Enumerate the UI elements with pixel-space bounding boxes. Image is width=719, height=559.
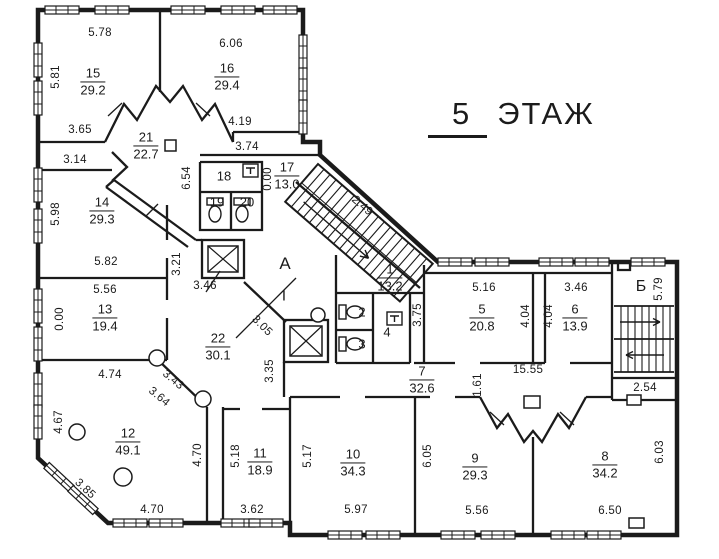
floor-number: 5 xyxy=(428,96,487,138)
label-overlay: 5 ЭТАЖ 1529.21629.42122.71713.01429.3131… xyxy=(0,0,719,559)
dimension-4.04: 4.04 xyxy=(520,304,532,328)
dimension-5.56: 5.56 xyxy=(465,505,489,517)
floor-title: 5 ЭТАЖ xyxy=(428,96,595,138)
dimension-4.74: 4.74 xyxy=(98,369,122,381)
room-label-6: 613.9 xyxy=(562,302,587,333)
dimension-3.46: 3.46 xyxy=(564,282,588,294)
room-label-1: 113.2 xyxy=(377,262,402,293)
label-A: A xyxy=(279,254,290,274)
dimension-3.75: 3.75 xyxy=(412,303,424,327)
room-label-12: 1249.1 xyxy=(115,426,140,457)
label-2: 2 xyxy=(358,305,365,320)
label-Б: Б xyxy=(636,278,647,296)
room-label-21: 2122.7 xyxy=(133,130,158,161)
dimension-6.50: 6.50 xyxy=(598,505,622,517)
dimension-2.54: 2.54 xyxy=(633,382,657,394)
dimension-3.65: 3.65 xyxy=(68,124,92,136)
floor-plan-page: 5 ЭТАЖ 1529.21629.42122.71713.01429.3131… xyxy=(0,0,719,559)
dimension-6.03: 6.03 xyxy=(654,440,666,464)
dimension-5.98: 5.98 xyxy=(50,202,62,226)
label-18: 18 xyxy=(217,169,231,184)
dimension-5.56: 5.56 xyxy=(93,284,117,296)
room-label-7: 732.6 xyxy=(409,364,434,395)
dimension-5.82: 5.82 xyxy=(94,256,118,268)
dimension-2.49: 2.49 xyxy=(349,194,375,219)
floor-word: ЭТАЖ xyxy=(497,96,595,132)
dimension-6.54: 6.54 xyxy=(181,166,193,190)
dimension-4.04: 4.04 xyxy=(543,304,555,328)
dimension-5.81: 5.81 xyxy=(50,65,62,89)
dimension-5.78: 5.78 xyxy=(88,27,112,39)
room-label-11: 1118.9 xyxy=(247,446,272,477)
dimension-5.79: 5.79 xyxy=(653,277,665,301)
room-label-16: 1629.4 xyxy=(214,61,239,92)
dimension-4.70: 4.70 xyxy=(192,443,204,467)
label-20: 20 xyxy=(240,195,254,210)
dimension-6.06: 6.06 xyxy=(219,38,243,50)
dimension-3.62: 3.62 xyxy=(240,504,264,516)
dimension-3.43: 3.43 xyxy=(160,368,186,392)
room-label-5: 520.8 xyxy=(469,302,494,333)
dimension-0.00: 0.00 xyxy=(262,167,274,191)
dimension-3.46: 3.46 xyxy=(193,280,217,292)
room-label-13: 1319.4 xyxy=(92,302,117,333)
room-label-14: 1429.3 xyxy=(89,195,114,226)
dimension-4.70: 4.70 xyxy=(140,504,164,516)
dimension-3.64: 3.64 xyxy=(146,385,172,409)
label-4: 4 xyxy=(383,325,390,340)
dimension-3.74: 3.74 xyxy=(235,141,259,153)
dimension-15.55: 15.55 xyxy=(513,364,543,376)
label-3: 3 xyxy=(358,337,365,352)
label-19: 19 xyxy=(210,195,224,210)
dimension-5.17: 5.17 xyxy=(302,444,314,468)
dimension-3.21: 3.21 xyxy=(171,252,183,276)
dimension-5.18: 5.18 xyxy=(230,444,242,468)
dimension-3.85: 3.85 xyxy=(72,477,97,502)
dimension-3.14: 3.14 xyxy=(63,154,87,166)
room-label-22: 2230.1 xyxy=(205,331,230,362)
dimension-1.61: 1.61 xyxy=(472,373,484,397)
room-label-17: 1713.0 xyxy=(274,160,299,191)
dimension-4.19: 4.19 xyxy=(228,116,252,128)
dimension-5.16: 5.16 xyxy=(472,282,496,294)
dimension-6.05: 6.05 xyxy=(422,444,434,468)
label-I: I xyxy=(282,288,286,305)
room-label-9: 929.3 xyxy=(462,451,487,482)
room-label-8: 834.2 xyxy=(592,449,617,480)
room-label-10: 1034.3 xyxy=(340,447,365,478)
dimension-0.00: 0.00 xyxy=(54,307,66,331)
dimension-3.35: 3.35 xyxy=(264,359,276,383)
room-label-15: 1529.2 xyxy=(80,66,105,97)
dimension-5.97: 5.97 xyxy=(344,504,368,516)
dimension-4.67: 4.67 xyxy=(53,410,65,434)
dimension-3.05: 3.05 xyxy=(249,313,274,338)
